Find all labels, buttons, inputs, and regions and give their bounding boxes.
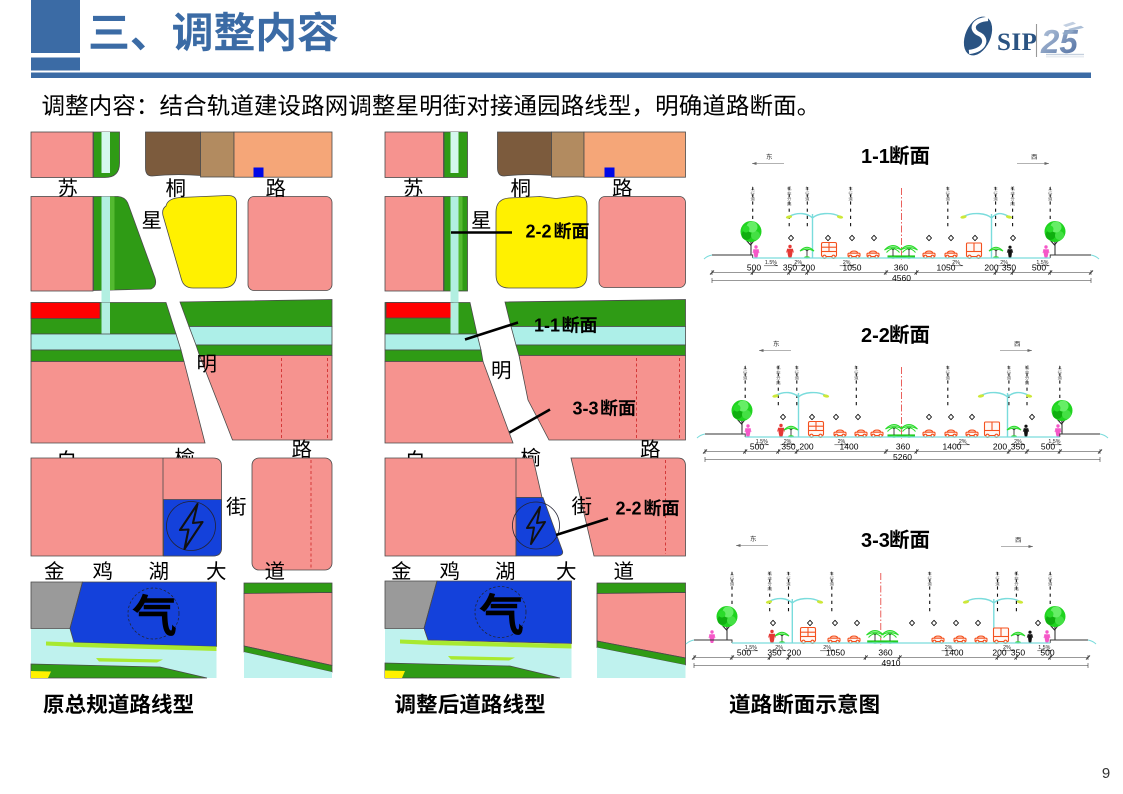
- svg-text:1-1: 1-1: [861, 146, 890, 168]
- svg-text:SIP: SIP: [997, 29, 1037, 56]
- svg-text:200: 200: [993, 442, 1007, 452]
- svg-text:200: 200: [787, 648, 801, 658]
- svg-text:2-2: 2-2: [861, 325, 890, 347]
- svg-text:360: 360: [878, 648, 892, 658]
- svg-text:350: 350: [767, 648, 781, 658]
- svg-text:200: 200: [984, 263, 998, 273]
- svg-text:1050: 1050: [843, 263, 862, 273]
- svg-text:500: 500: [1041, 442, 1055, 452]
- svg-text:3-3: 3-3: [861, 530, 890, 552]
- svg-text:4560: 4560: [892, 273, 911, 283]
- svg-text:1400: 1400: [945, 648, 964, 658]
- svg-text:200: 200: [799, 442, 813, 452]
- svg-text:500: 500: [747, 263, 761, 273]
- svg-text:4910: 4910: [882, 658, 901, 668]
- svg-text:360: 360: [896, 442, 910, 452]
- svg-text:1050: 1050: [826, 648, 845, 658]
- svg-text:1400: 1400: [840, 442, 859, 452]
- svg-text:500: 500: [1032, 263, 1046, 273]
- svg-text:350: 350: [1002, 263, 1016, 273]
- svg-text:360: 360: [894, 263, 908, 273]
- svg-text:5260: 5260: [893, 452, 912, 462]
- svg-text:350: 350: [781, 442, 795, 452]
- svg-text:500: 500: [737, 648, 751, 658]
- svg-text:350: 350: [1011, 442, 1025, 452]
- svg-text:1050: 1050: [937, 263, 956, 273]
- svg-text:350: 350: [1011, 648, 1025, 658]
- svg-text:200: 200: [801, 263, 815, 273]
- svg-text:2-2: 2-2: [526, 222, 552, 242]
- svg-text:350: 350: [783, 263, 797, 273]
- svg-text:500: 500: [750, 442, 764, 452]
- svg-text:1400: 1400: [943, 442, 962, 452]
- svg-text:500: 500: [1040, 648, 1054, 658]
- svg-text:1-1: 1-1: [534, 316, 560, 336]
- svg-text:9: 9: [1102, 765, 1110, 782]
- svg-text:3-3: 3-3: [573, 399, 599, 419]
- svg-text:200: 200: [992, 648, 1006, 658]
- svg-text:2-2: 2-2: [616, 499, 642, 519]
